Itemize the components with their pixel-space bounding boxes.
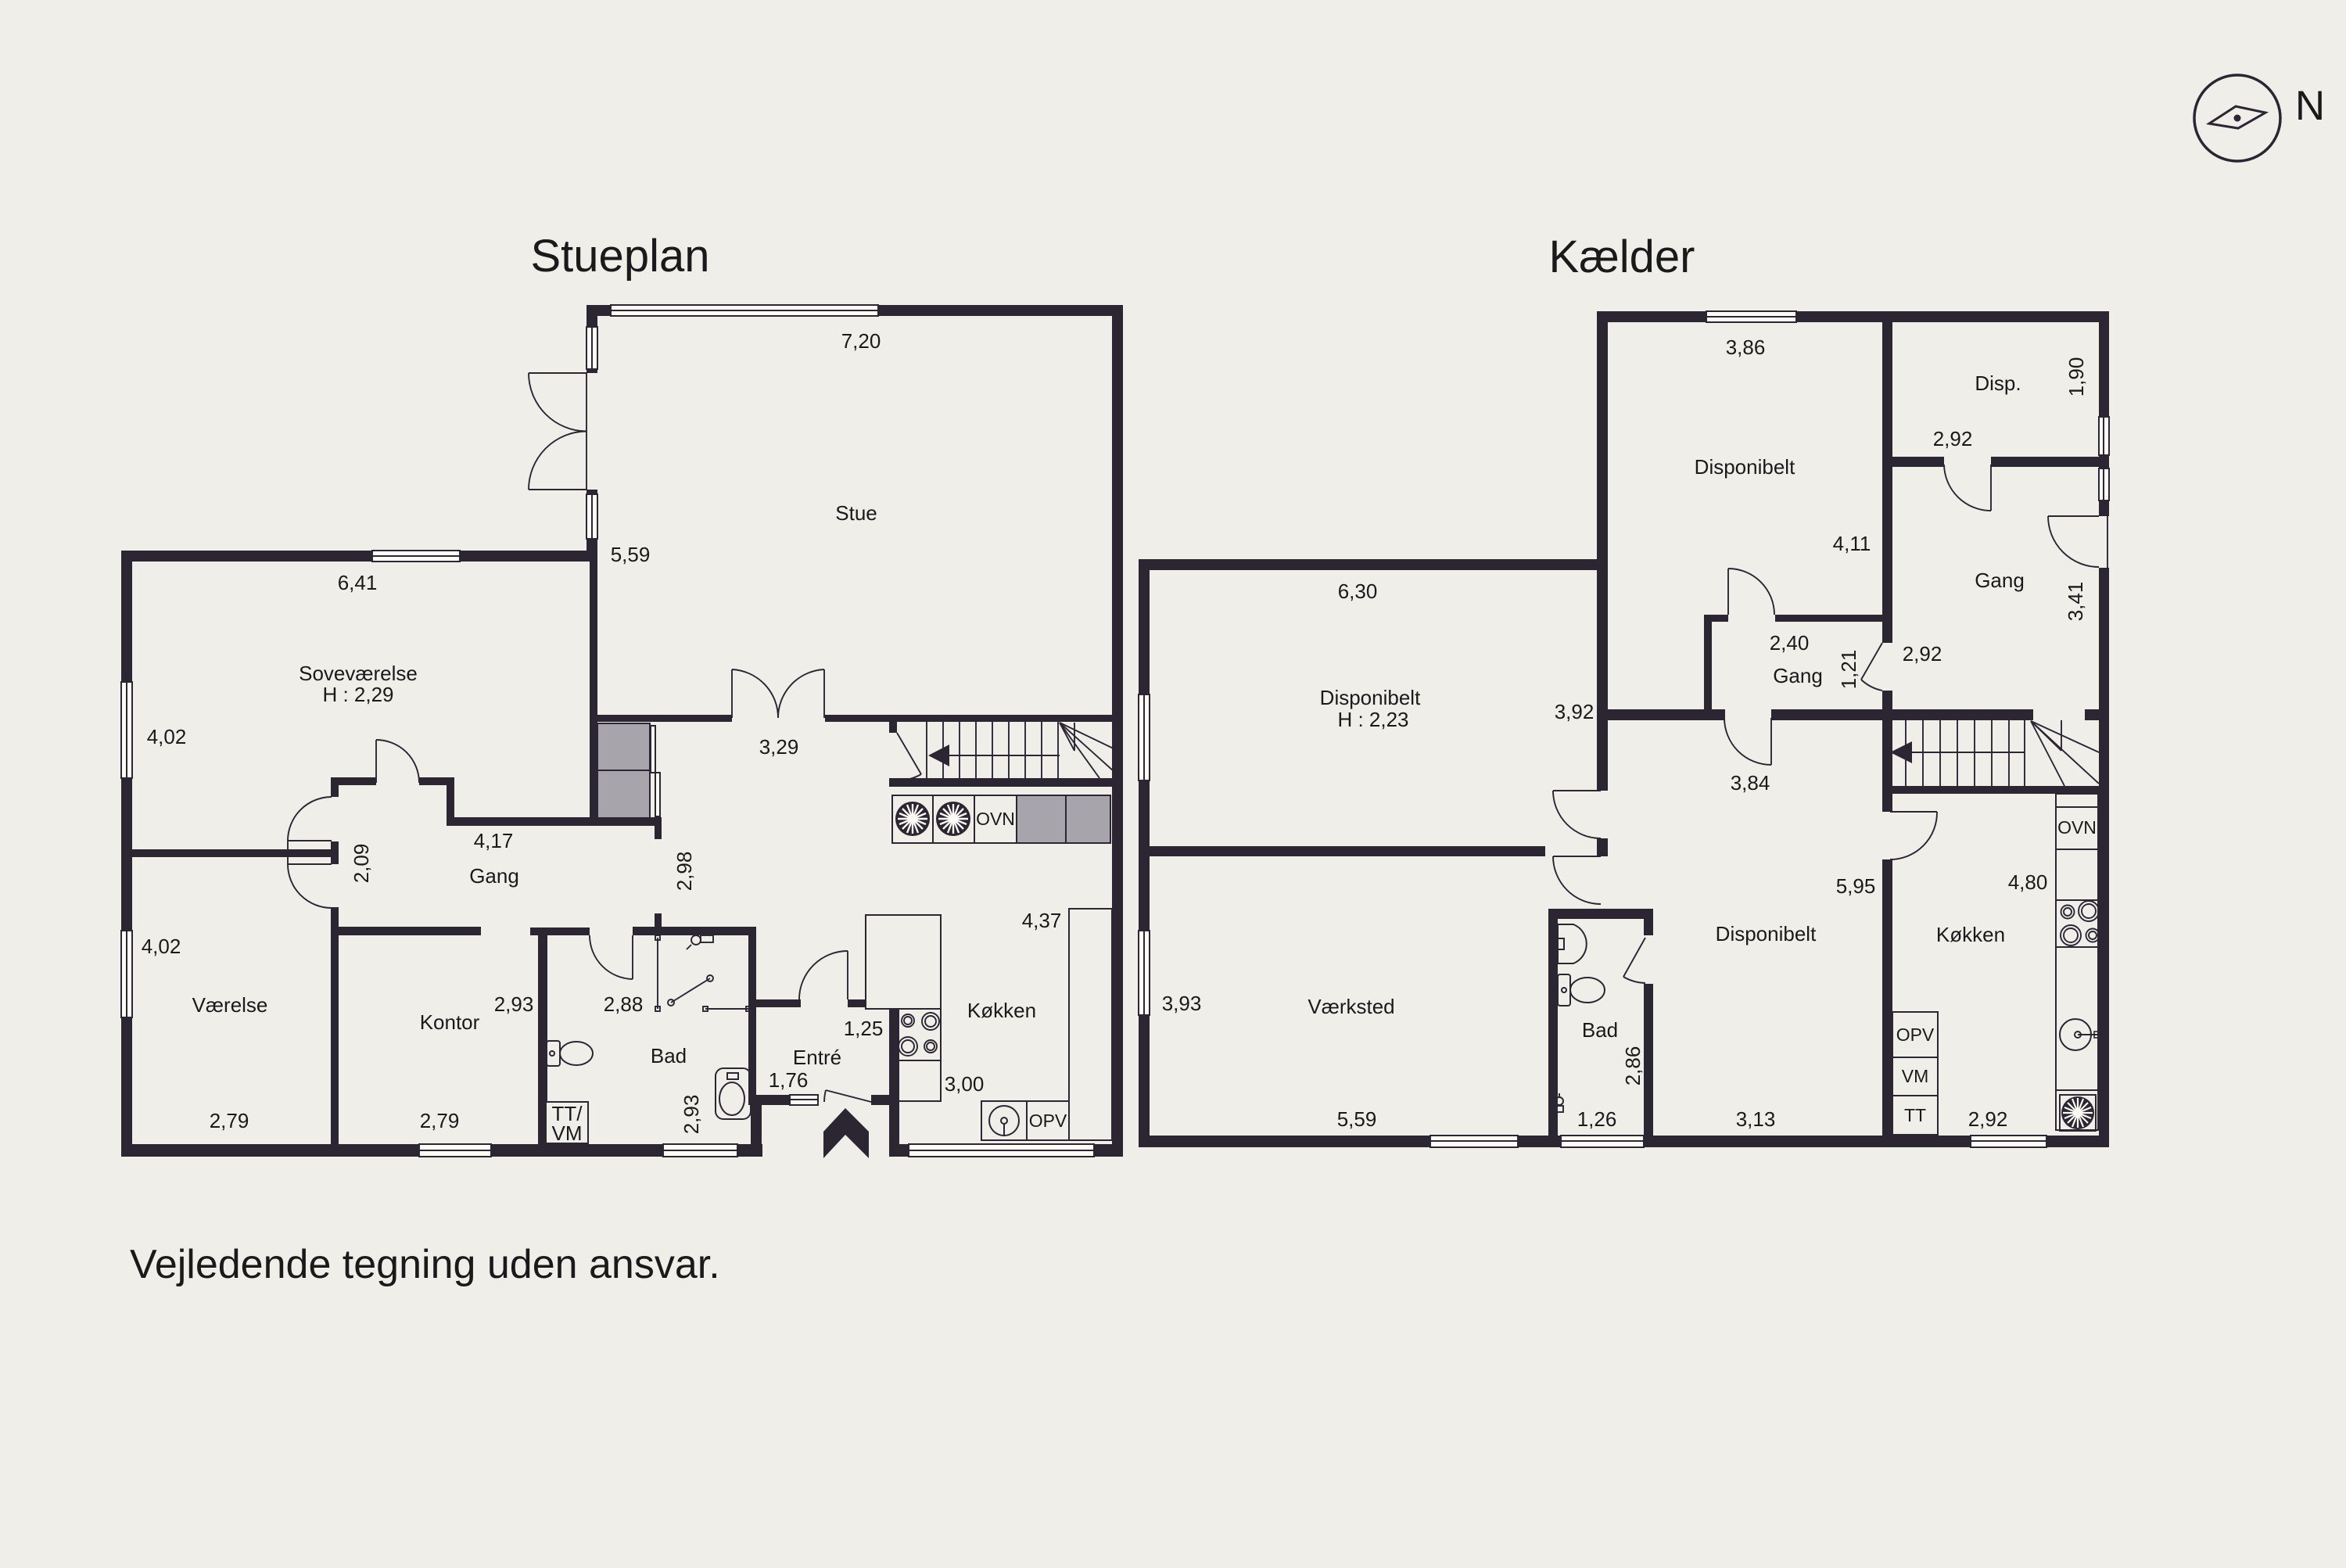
svg-text:Værksted: Værksted [1308,995,1394,1018]
svg-text:TT: TT [1904,1105,1926,1125]
svg-text:Kælder: Kælder [1549,231,1695,282]
svg-text:N: N [2295,83,2325,129]
svg-text:2,86: 2,86 [1621,1046,1645,1086]
svg-text:Disponibelt: Disponibelt [1716,922,1817,945]
svg-text:Gang: Gang [1975,569,2025,592]
svg-text:Bad: Bad [1582,1018,1618,1042]
svg-text:2,40: 2,40 [1770,631,1810,655]
svg-text:OPV: OPV [1896,1024,1935,1045]
svg-text:3,13: 3,13 [1736,1107,1776,1131]
svg-text:1,21: 1,21 [1837,650,1860,690]
svg-text:4,11: 4,11 [1833,532,1871,555]
svg-text:H : 2,29: H : 2,29 [322,683,393,706]
svg-text:2,92: 2,92 [1933,427,1973,450]
svg-text:2,92: 2,92 [1903,642,1942,666]
svg-text:2,98: 2,98 [673,852,696,892]
svg-text:1,90: 1,90 [2064,357,2088,397]
svg-text:5,59: 5,59 [1337,1107,1377,1131]
svg-text:Køkken: Køkken [1936,923,2005,946]
svg-text:Stue: Stue [835,501,877,525]
svg-text:2,93: 2,93 [680,1095,703,1135]
svg-text:3,92: 3,92 [1555,700,1594,723]
svg-text:VM: VM [1902,1066,1929,1086]
svg-text:2,79: 2,79 [420,1109,460,1132]
svg-text:1,26: 1,26 [1577,1107,1617,1131]
svg-text:Disp.: Disp. [1975,371,2021,395]
svg-text:3,29: 3,29 [759,735,799,759]
svg-text:H : 2,23: H : 2,23 [1337,708,1408,731]
svg-text:2,88: 2,88 [604,992,644,1016]
svg-text:4,17: 4,17 [474,829,514,852]
svg-text:Disponibelt: Disponibelt [1320,686,1421,709]
svg-text:2,79: 2,79 [210,1109,249,1132]
svg-text:Vejledende tegning uden ansvar: Vejledende tegning uden ansvar. [130,1242,720,1287]
svg-text:6,30: 6,30 [1338,579,1378,603]
svg-text:Soveværelse: Soveværelse [299,662,418,685]
svg-text:OVN: OVN [2057,817,2097,838]
svg-text:4,02: 4,02 [142,935,181,958]
svg-text:4,02: 4,02 [147,725,187,748]
svg-text:Kontor: Kontor [420,1010,480,1034]
svg-text:4,37: 4,37 [1022,909,1062,932]
svg-text:3,41: 3,41 [2064,582,2087,622]
svg-text:6,41: 6,41 [338,571,378,594]
svg-text:5,95: 5,95 [1836,874,1876,898]
svg-text:5,59: 5,59 [611,543,651,566]
svg-text:3,00: 3,00 [945,1072,985,1096]
svg-text:2,92: 2,92 [1968,1107,2008,1131]
svg-text:4,80: 4,80 [2008,870,2048,894]
svg-text:Gang: Gang [469,864,519,888]
svg-text:Bad: Bad [651,1044,687,1067]
svg-text:Entré: Entré [793,1046,841,1069]
svg-text:OVN: OVN [976,809,1015,829]
svg-text:Disponibelt: Disponibelt [1695,455,1795,479]
svg-text:Køkken: Køkken [967,999,1036,1022]
svg-text:1,76: 1,76 [769,1068,809,1092]
svg-text:1,25: 1,25 [844,1017,884,1040]
svg-text:3,86: 3,86 [1726,335,1766,359]
svg-text:2,09: 2,09 [350,844,373,884]
svg-text:Værelse: Værelse [192,993,268,1017]
svg-text:3,84: 3,84 [1731,771,1770,795]
svg-text:7,20: 7,20 [841,329,881,353]
svg-text:OPV: OPV [1029,1111,1067,1131]
svg-text:VM: VM [552,1121,583,1145]
svg-text:Stueplan: Stueplan [531,231,710,282]
svg-text:2,93: 2,93 [494,992,534,1016]
svg-text:Gang: Gang [1773,664,1823,687]
svg-text:3,93: 3,93 [1162,992,1202,1015]
